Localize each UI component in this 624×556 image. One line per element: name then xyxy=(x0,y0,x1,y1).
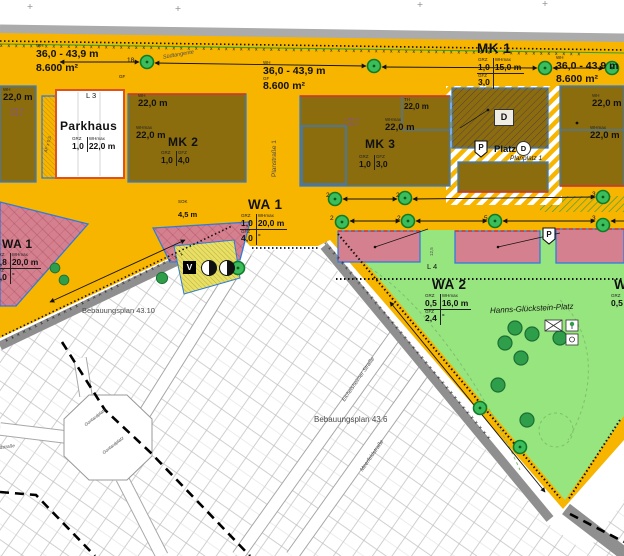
parking-badge-label: P xyxy=(543,230,555,239)
schablone-wa2: GRZ0,5 WHmax16,0 m GFZ2,4 - xyxy=(424,294,471,325)
zone-label-mk1: MK 1 xyxy=(477,42,511,56)
gontardplatz-octagon xyxy=(64,395,152,480)
bplan-43-10-label: Bebauungsplan 43.10 xyxy=(82,307,155,315)
tree-count: 5 xyxy=(484,216,488,223)
schablone-wa2-right: GRZ0,5 GFZ2,4 xyxy=(610,294,624,310)
tree-count: 3 xyxy=(592,216,596,223)
existing-tree-icon xyxy=(202,261,217,276)
tree-count: 2 xyxy=(397,216,401,223)
dimension-note: 12,5 xyxy=(430,247,435,256)
height-annotation: WH 22,0 m xyxy=(3,88,33,103)
schablone-mk1: GRZ1,0 WHmax15,0 m GFZ3,0 xyxy=(477,58,524,89)
street-name-planplatz1: Planplatz 1 xyxy=(510,156,542,163)
bplan-43-6-label: Bebauungsplan 43.6 xyxy=(314,416,387,424)
height-annotation: WH 36,0 - 43,9 m 8.600 m² xyxy=(556,56,618,85)
height-annotation: TH 22,0 m xyxy=(404,98,429,111)
gf-label: GF xyxy=(119,75,125,80)
height-annotation: WHmax 22,0 m xyxy=(136,126,166,141)
zone-label-wa1: WA 1 xyxy=(248,198,283,212)
height-annotation: WH 36,0 - 43,9 m GF 8.600 m² xyxy=(263,61,325,92)
street-name-planstrasse1: Planstraße 1 xyxy=(272,140,279,177)
existing-tree-icon xyxy=(220,261,235,276)
schablone-mk2: GRZ1,0 GFZ4,0 xyxy=(160,151,193,166)
height-annotation: WHmax 22,0 m xyxy=(590,126,620,141)
tree-count: 18 xyxy=(127,58,134,65)
platz-label: Platz xyxy=(494,145,516,155)
lpb-note: LPB VILPB V xyxy=(10,108,24,117)
tree-count: 2 xyxy=(330,216,334,223)
height-annotation: WH 22,0 m xyxy=(592,94,622,109)
site-plan-map: xxxxxxxxxxxxxxxxxxxxxxxxxxxxxxxxxxxxxxxx… xyxy=(0,0,624,556)
zone-label-mk3: MK 3 xyxy=(365,138,395,151)
d-marker: D xyxy=(494,109,514,126)
v-marker: V xyxy=(183,261,196,274)
lpb-note: LPB VILPB V xyxy=(345,118,359,127)
schablone-parkhaus: GRZ1,0 WHmax22,0 m xyxy=(71,137,118,152)
schablone-wa1-left: GRZ0,8 WHmax20,0 m GFZ2,0 - xyxy=(0,253,41,284)
zone-label-mk2: MK 2 xyxy=(168,136,198,149)
schablone-mk3: GRZ1,0 GFZ3,0 xyxy=(358,155,391,170)
l3-label: L 3 xyxy=(86,92,96,100)
d-circle-marker: D xyxy=(516,141,531,156)
tree-count: 3 xyxy=(592,192,596,199)
height-annotation: WHmax 22,0 m xyxy=(385,118,415,133)
tree-count: 2 xyxy=(396,193,400,200)
height-annotation: WH 22,0 m xyxy=(138,94,168,109)
parking-badge-label: P xyxy=(475,143,487,152)
zone-label-wa2-right: WA 2 xyxy=(614,278,624,292)
zone-label-wa1-left: WA 1 xyxy=(2,238,33,251)
tree-count: 2 xyxy=(326,193,330,200)
sok-annotation: SOK 4,5 m xyxy=(178,200,197,222)
l4-label: L 4 xyxy=(427,263,437,271)
zone-label-wa2: WA 2 xyxy=(432,278,467,292)
height-annotation: WH 36,0 - 43,9 m 8.600 m² xyxy=(36,44,98,74)
survey-cross-icon xyxy=(28,1,548,11)
zone-label-parkhaus: Parkhaus xyxy=(60,120,117,133)
schablone-wa1: GRZ1,0 WHmax20,0 m GFZ4,0 - xyxy=(240,214,287,245)
